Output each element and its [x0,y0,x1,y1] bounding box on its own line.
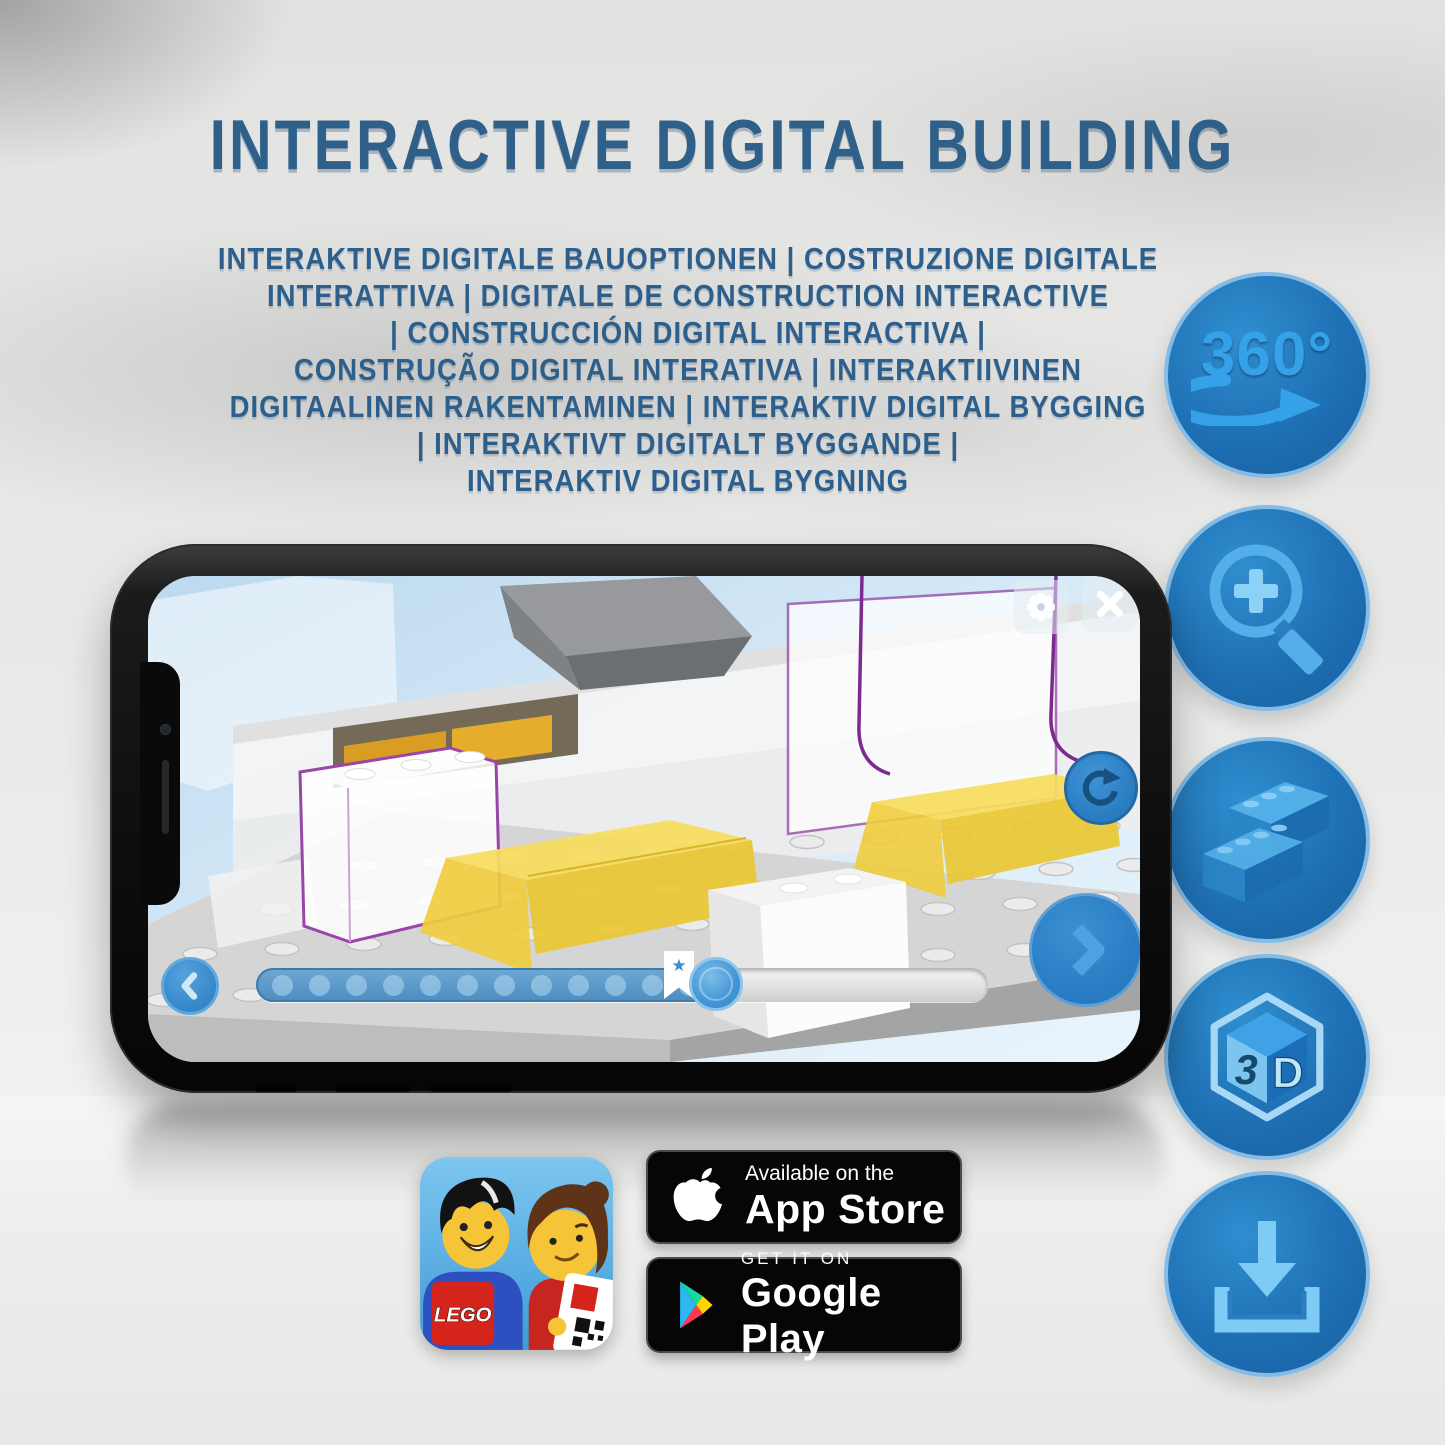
phone-camera [160,724,171,735]
subtitle-line: INTERAKTIV DIGITAL BYGNING [0,460,1376,501]
progress-fill [256,968,716,1002]
phone-notch [140,662,180,905]
settings-button[interactable] [1014,580,1068,634]
360-rotation-icon: 360° [1191,319,1343,426]
gear-icon [1021,587,1061,627]
app-store-name: App Store [745,1186,945,1232]
app-store-badge[interactable]: Available on the App Store [646,1150,962,1244]
phone-side-button [255,1085,297,1092]
phone-speaker [162,760,169,834]
close-button[interactable] [1082,576,1138,632]
app-store-tagline: Available on the [745,1162,945,1186]
subtitle-line: INTERATTIVA | DIGITALE DE CONSTRUCTION I… [0,275,1376,316]
lego-app-icon[interactable]: LEGO [415,1152,618,1355]
slider-thumb[interactable] [689,957,743,1011]
svg-text:LEGO: LEGO [434,1305,492,1327]
chevron-right-icon [1047,911,1125,989]
phone-reflection [125,1102,1165,1217]
3d-view-icon: 3 D [1187,977,1347,1137]
reset-rotation-button[interactable] [1064,751,1138,825]
apple-logo-icon [672,1165,728,1229]
rotate-arrow-icon [1078,765,1124,811]
next-step-button[interactable] [1029,893,1140,1007]
svg-text:3: 3 [1235,1046,1258,1093]
google-play-tagline: GET IT ON [741,1248,960,1270]
feature-badge-zoom [1164,505,1370,711]
lego-marketing-page: INTERACTIVE DIGITAL BUILDING INTERAKTIVE… [0,0,1445,1445]
page-title: INTERACTIVE DIGITAL BUILDING [0,104,1445,186]
app-screen: ★ [148,576,1140,1062]
feature-badge-download [1164,1171,1370,1377]
google-play-name: Google Play [741,1270,960,1362]
feature-badge-bricks [1164,737,1370,943]
phone-mockup: ★ [110,544,1172,1093]
lego-bricks-icon [1189,762,1345,918]
zoom-in-icon [1192,533,1342,683]
feature-badge-3d: 3 D [1164,954,1370,1160]
previous-step-button[interactable] [161,957,219,1015]
build-progress-slider[interactable]: ★ [256,968,988,1002]
phone-side-button [335,1085,411,1092]
phone-side-button [430,1085,512,1092]
google-play-logo-icon [672,1275,724,1335]
subtitle-line: | INTERAKTIVT DIGITALT BYGGANDE | [0,423,1376,464]
chevron-left-icon [173,969,207,1003]
close-icon [1091,585,1129,623]
svg-text:D: D [1272,1049,1303,1097]
feature-badge-360: 360° [1164,272,1370,478]
subtitle-line: INTERAKTIVE DIGITALE BAUOPTIONEN | COSTR… [0,238,1376,279]
google-play-badge[interactable]: GET IT ON Google Play [646,1257,962,1353]
download-icon [1192,1199,1342,1349]
